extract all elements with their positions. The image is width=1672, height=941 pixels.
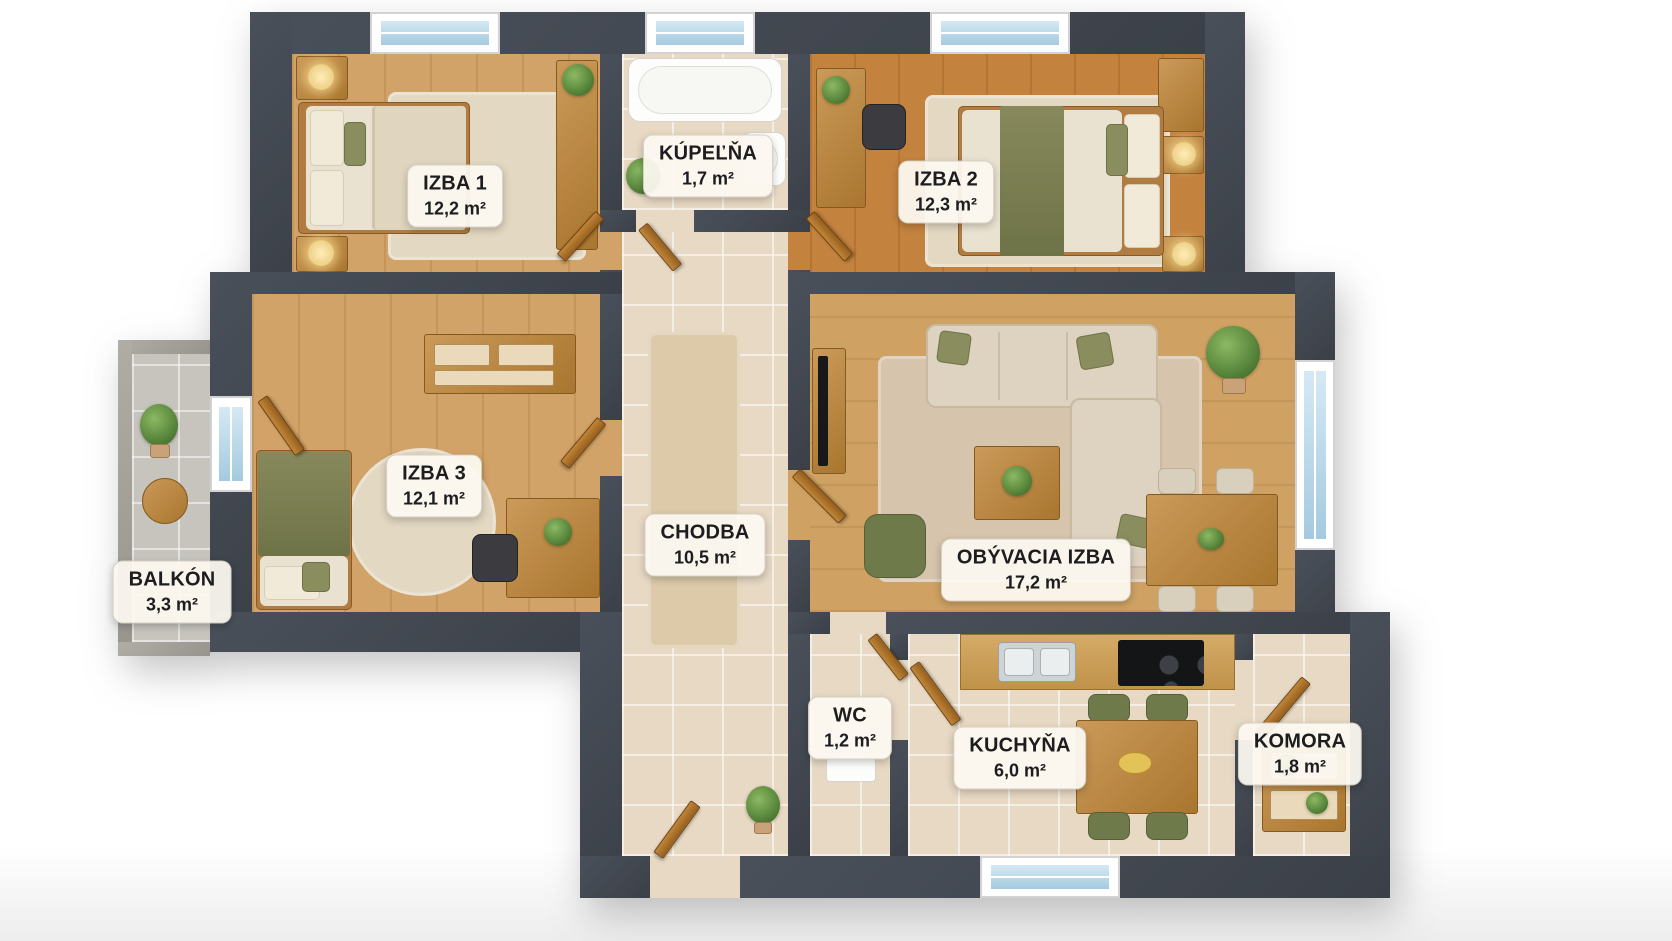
wall-segment [600,54,622,214]
sink-basin [1004,648,1034,676]
plant-pot [150,444,170,458]
bedside-lamp [1172,142,1196,166]
fruit-bowl [1118,752,1152,774]
bedside-lamp [1172,242,1196,266]
room-label-wc: WC 1,2 m² [808,697,892,760]
cooktop [1118,640,1204,686]
room-label-obyvacia-izba: OBÝVACIA IZBA 17,2 m² [941,539,1131,602]
hallway-plant [746,786,780,824]
bathroom-window [645,12,755,54]
room-label-komora: KOMORA 1,8 m² [1238,723,1362,786]
room-label-chodba: CHODBA 10,5 m² [645,514,766,577]
wall-segment [788,272,1335,294]
room-area: 12,3 m² [914,195,978,216]
room-name: IZBA 1 [423,173,487,196]
plant [1306,792,1328,814]
kitchen-chair [1088,812,1130,840]
sofa-seam [1066,332,1068,400]
armchair [864,514,926,578]
tv-screen [818,356,828,466]
plant [544,518,572,546]
bedroom2-wardrobe [1158,58,1204,132]
bedroom2-window [930,12,1070,54]
wall-segment [250,12,292,294]
room-area: 6,0 m² [969,761,1070,782]
room-area: 12,1 m² [402,489,466,510]
bedside-lamp [308,240,334,266]
dining-chair [1158,468,1196,494]
room-label-kuchyna: KUCHYŇA 6,0 m² [953,727,1086,790]
bed-pillow [310,110,344,166]
room-name: WC [824,705,876,728]
shelf-compartment [434,344,490,366]
table-centerpiece [1198,528,1224,550]
wall-segment [788,54,810,214]
kitchen-chair [1146,694,1188,722]
wall-segment [788,612,830,634]
toilet-tank [826,758,876,782]
room-label-balkon: BALKÓN 3,3 m² [113,561,232,624]
bed-pillow [310,170,344,226]
bedside-lamp [308,64,334,90]
wall-segment [1295,272,1335,360]
bathtub-basin [638,66,772,114]
table-plant [1002,466,1032,496]
dining-chair [1216,468,1254,494]
dining-chair [1158,586,1196,612]
bed-green-pillow [302,562,330,592]
room-name: CHODBA [661,522,750,545]
wall-segment [788,634,810,856]
wall-segment [890,740,908,856]
room-area: 1,2 m² [824,731,876,752]
plant-pot [1222,378,1246,394]
wall-segment [210,272,622,294]
plant [562,64,594,96]
hallway-runner-rug [648,332,740,648]
room-area: 17,2 m² [957,573,1115,594]
bedroom1-window [370,12,500,54]
wall-segment [580,856,650,898]
room-label-kupelna: KÚPEĽŇA 1,7 m² [643,135,773,198]
wall-segment [600,294,622,420]
sofa-green-pillow [936,330,972,366]
doorway-threshold [830,612,886,634]
bed-pillow [1124,114,1160,178]
room-name: BALKÓN [129,569,216,592]
balcony-chair [142,478,188,524]
wall-segment [1205,12,1245,294]
room-area: 1,7 m² [659,169,757,190]
sink-basin [1040,648,1070,676]
apartment-floor-plan: IZBA 1 12,2 m² KÚPEĽŇA 1,7 m² IZBA 2 12,… [0,0,1672,941]
bed-pillow [1124,184,1160,248]
shelf-compartment [498,344,554,366]
bed-green-pillow [344,122,366,166]
wall-segment [788,540,810,612]
bed-green-pillow [1106,124,1128,176]
balcony-wall [118,642,210,656]
desk-chair [862,104,906,150]
dining-chair [1216,586,1254,612]
sofa-green-pillow [1075,331,1114,370]
room-area: 1,8 m² [1254,757,1346,778]
plant [822,76,850,104]
wall-segment [210,612,622,652]
wall-segment [1235,634,1253,660]
room-name: KÚPEĽŇA [659,143,757,166]
bed-green-runner [1000,106,1064,256]
plant-pot [754,822,772,834]
room-area: 10,5 m² [661,548,750,569]
entrance-threshold [650,856,740,898]
room-name: KOMORA [1254,731,1346,754]
room-name: OBÝVACIA IZBA [957,547,1115,570]
room-label-izba1: IZBA 1 12,2 m² [407,165,503,228]
room-area: 12,2 m² [423,199,487,220]
wall-segment [600,210,636,232]
room-label-izba3: IZBA 3 12,1 m² [386,455,482,518]
room-name: IZBA 2 [914,169,978,192]
room-name: IZBA 3 [402,463,466,486]
sofa-seam [998,332,1000,400]
wall-segment [600,476,622,612]
wall-segment [788,294,810,470]
bedroom3-desk [506,498,600,598]
room-area: 3,3 m² [129,595,216,616]
wall-segment [694,210,810,232]
shelf-compartment [434,370,554,386]
balcony-plant [140,404,178,446]
balcony-door-glass [210,396,252,492]
kitchen-window [980,856,1120,898]
room-name: KUCHYŇA [969,735,1070,758]
corner-plant [1206,326,1260,380]
wall-segment [886,612,1390,634]
kitchen-chair [1146,812,1188,840]
living-room-window [1295,360,1335,550]
bed-green-blanket [258,452,350,556]
floor-plan-canvas: IZBA 1 12,2 m² KÚPEĽŇA 1,7 m² IZBA 2 12,… [0,0,1672,941]
kitchen-chair [1088,694,1130,722]
room-label-izba2: IZBA 2 12,3 m² [898,161,994,224]
desk-chair [472,534,518,582]
